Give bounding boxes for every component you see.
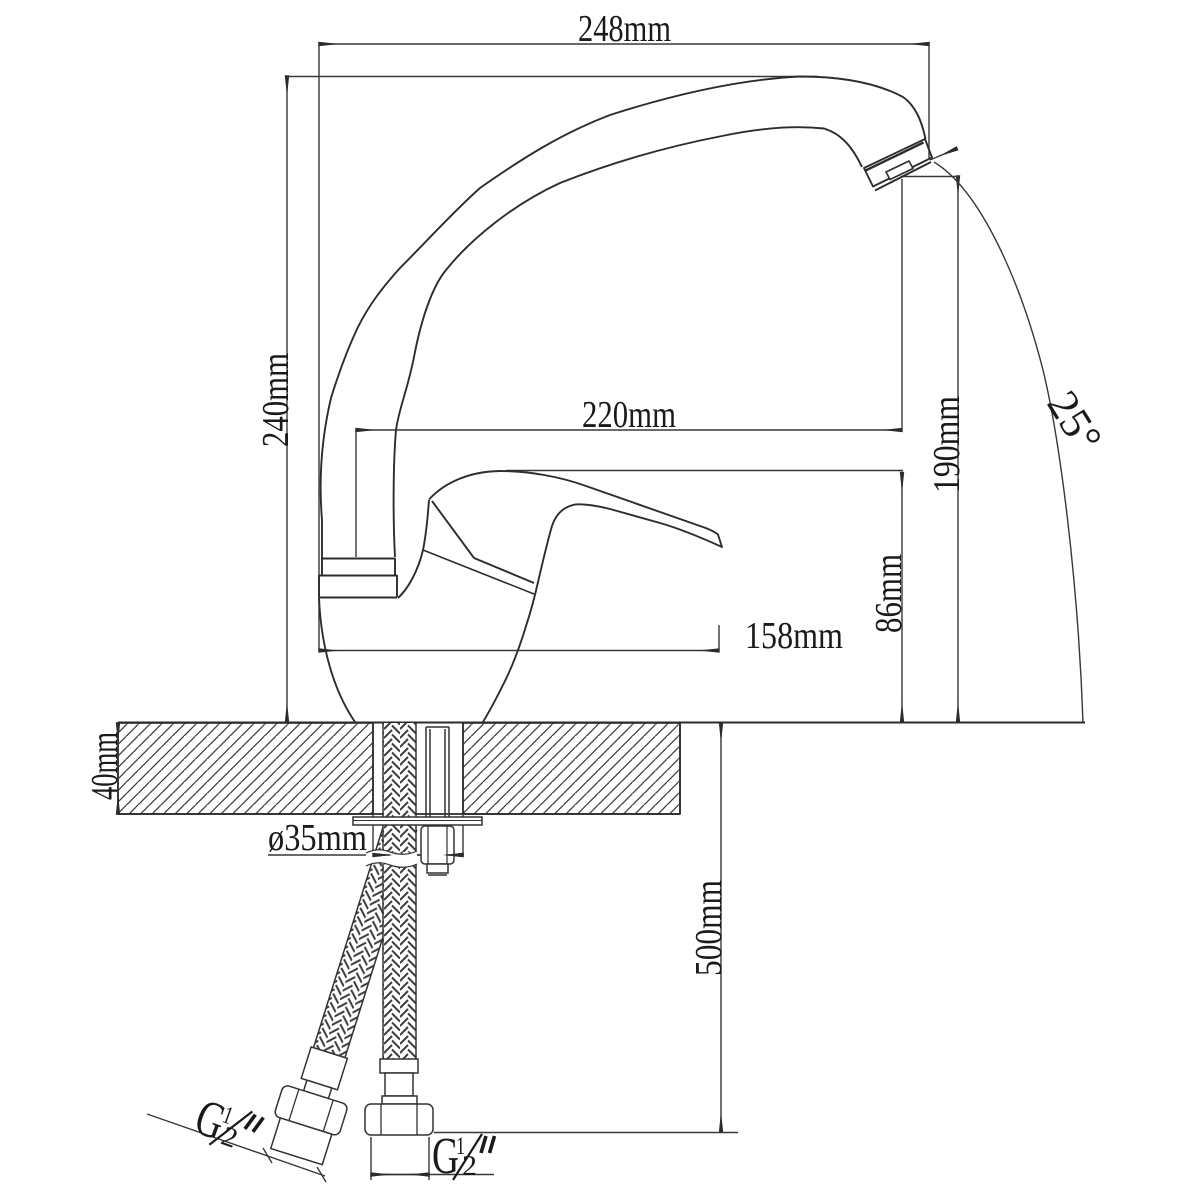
svg-text:40mm: 40mm [84,732,126,800]
svg-text:190mm: 190mm [926,396,968,493]
svg-text:248mm: 248mm [578,8,671,50]
svg-text:220mm: 220mm [582,394,676,436]
svg-text:240mm: 240mm [255,353,297,447]
svg-text:ø35mm: ø35mm [268,817,367,859]
svg-text:158mm: 158mm [745,615,843,657]
svg-text:500mm: 500mm [688,880,730,976]
svg-text:86mm: 86mm [868,554,910,633]
